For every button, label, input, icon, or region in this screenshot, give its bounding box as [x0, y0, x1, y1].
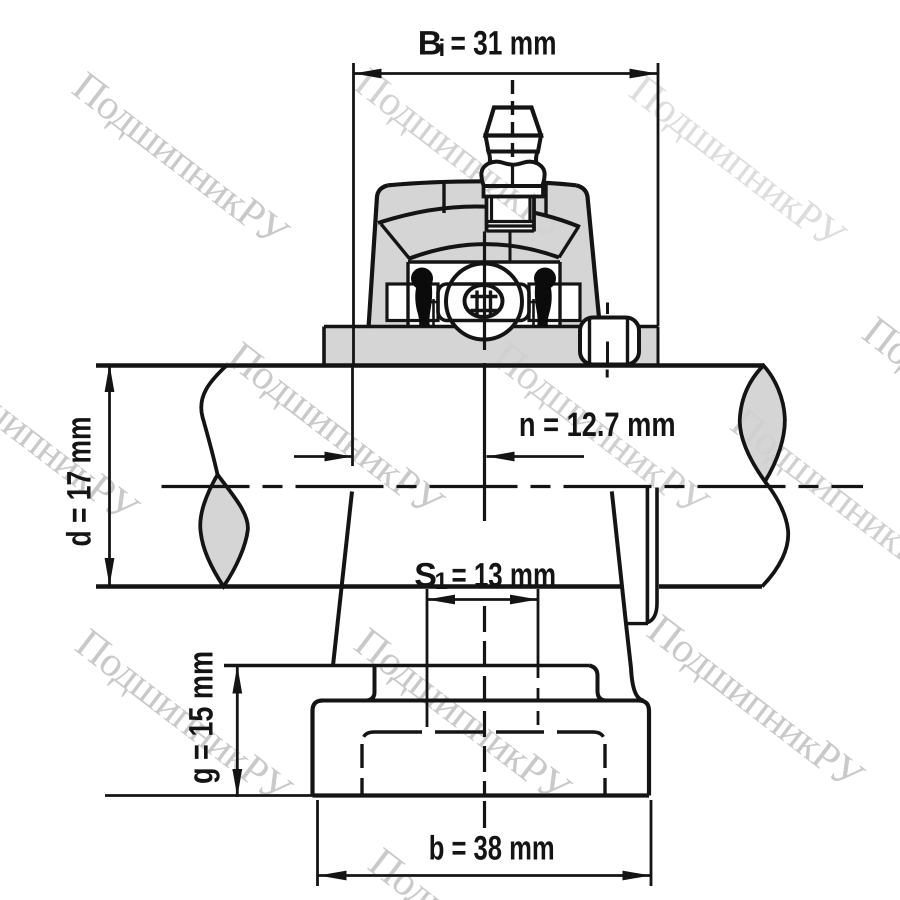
- svg-text:= 13 mm: = 13 mm: [452, 557, 557, 595]
- svg-text:i: i: [439, 35, 446, 62]
- svg-text:1: 1: [435, 568, 448, 595]
- svg-text:b = 38 mm: b = 38 mm: [429, 830, 555, 868]
- svg-text:= 31 mm: = 31 mm: [451, 24, 557, 62]
